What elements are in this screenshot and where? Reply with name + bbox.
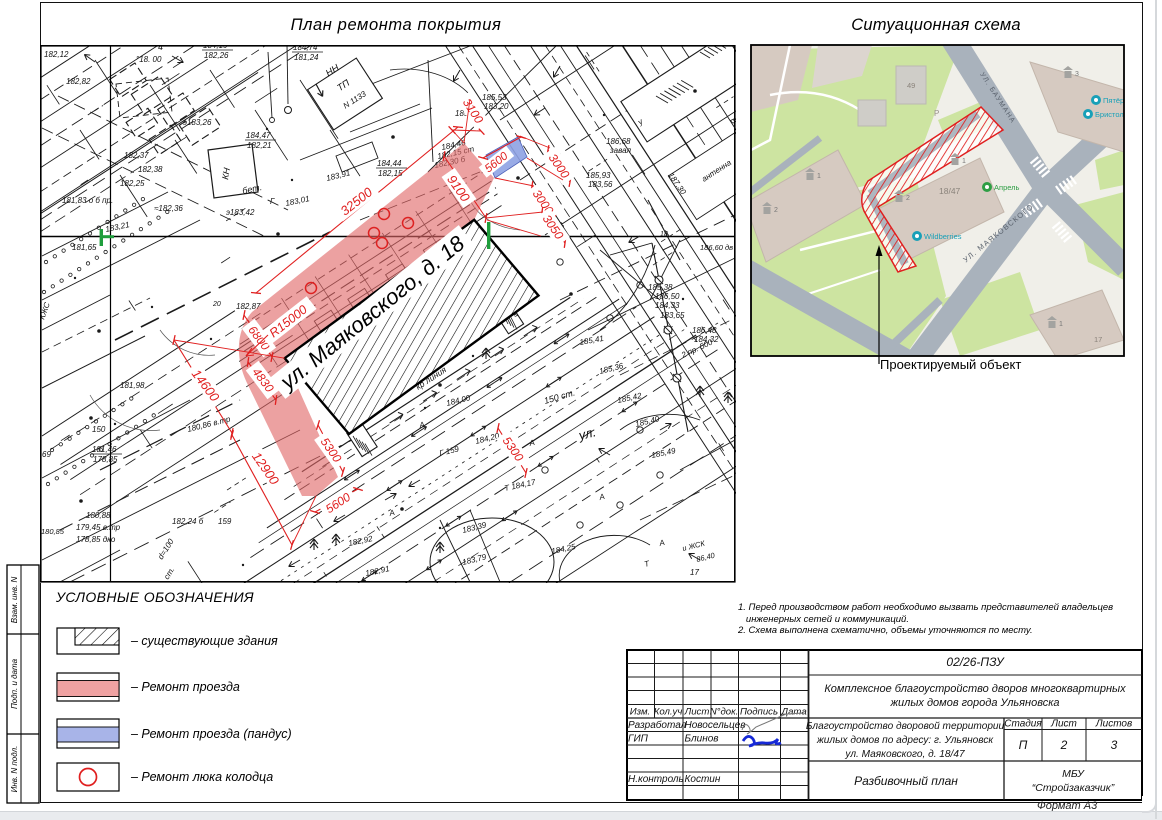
svg-text:179,45 в.тр: 179,45 в.тр xyxy=(76,523,121,532)
svg-text:17: 17 xyxy=(690,568,699,577)
svg-text:°18. 00: °18. 00 xyxy=(136,55,162,64)
svg-text:ул. Маяковского, д. 18/47: ул. Маяковского, д. 18/47 xyxy=(844,749,965,760)
svg-text:МБУ: МБУ xyxy=(1062,768,1085,780)
svg-text:Листов: Листов xyxy=(1095,719,1132,730)
svg-text:Кол.уч: Кол.уч xyxy=(654,707,683,718)
svg-text:Блинов: Блинов xyxy=(685,734,719,745)
svg-text:Н.контроль: Н.контроль xyxy=(628,774,684,785)
svg-text:184,44: 184,44 xyxy=(377,159,402,168)
svg-text:3: 3 xyxy=(1111,738,1118,752)
svg-text:Костин: Костин xyxy=(685,774,721,785)
svg-text:2: 2 xyxy=(906,195,910,202)
svg-text:178,85 дко: 178,85 дко xyxy=(76,535,116,544)
svg-text:Г: Г xyxy=(270,197,275,206)
svg-text:181,98: 181,98 xyxy=(120,381,145,390)
svg-text:1: 1 xyxy=(817,173,821,180)
svg-text:КН: КН xyxy=(220,166,232,180)
svg-text:Комплексное благоустройство дв: Комплексное благоустройство дворов много… xyxy=(824,683,1126,695)
svg-text:183,56: 183,56 xyxy=(588,180,613,189)
svg-text:181,83 о б пр.: 181,83 о б пр. xyxy=(62,196,113,205)
svg-text:э183,26: э183,26 xyxy=(183,118,212,127)
svg-text:Бристоль: Бристоль xyxy=(1095,110,1128,119)
svg-text:Взам. инв. N: Взам. инв. N xyxy=(10,576,19,623)
svg-text:183,65: 183,65 xyxy=(660,311,685,320)
svg-text:181,46: 181,46 xyxy=(92,445,117,454)
svg-text:159: 159 xyxy=(218,517,232,526)
svg-text:49: 49 xyxy=(907,81,915,90)
svg-text:186,68: 186,68 xyxy=(606,137,631,146)
svg-text:17: 17 xyxy=(1094,335,1102,344)
svg-text:3: 3 xyxy=(1075,71,1079,78)
svg-text:жилых домов города Ульяновска: жилых домов города Ульяновска xyxy=(889,697,1059,709)
svg-text:П: П xyxy=(1019,738,1028,752)
svg-text:186,50: 186,50 xyxy=(655,292,680,301)
svg-text:182,37: 182,37 xyxy=(124,151,149,160)
svg-text:182,38: 182,38 xyxy=(138,165,163,174)
svg-text:≈182,36: ≈182,36 xyxy=(154,204,183,213)
svg-text:182,21: 182,21 xyxy=(247,141,271,150)
svg-text:181,24: 181,24 xyxy=(294,53,319,62)
svg-text:20: 20 xyxy=(212,301,221,308)
svg-text:завал: завал xyxy=(609,146,631,155)
svg-text:183,20: 183,20 xyxy=(484,102,509,111)
svg-text:Разработал: Разработал xyxy=(628,719,687,731)
svg-text:1: 1 xyxy=(962,158,966,165)
svg-text:181,65: 181,65 xyxy=(72,243,97,252)
svg-text:Стадия: Стадия xyxy=(1004,719,1042,730)
svg-text:182,15: 182,15 xyxy=(378,169,403,178)
svg-text:02/26-ПЗУ: 02/26-ПЗУ xyxy=(946,655,1005,669)
svg-text:ГИП: ГИП xyxy=(628,734,649,745)
svg-text:Апрель: Апрель xyxy=(994,183,1020,192)
svg-text:69: 69 xyxy=(42,450,51,459)
svg-text:Разбивочный план: Разбивочный план xyxy=(854,774,958,788)
svg-text:178,85: 178,85 xyxy=(93,455,118,464)
svg-text:185,93: 185,93 xyxy=(586,171,611,180)
svg-text:180,85: 180,85 xyxy=(41,527,65,536)
svg-text:150: 150 xyxy=(92,425,106,434)
svg-text:184,33: 184,33 xyxy=(655,301,680,310)
svg-text:Благоустройство дворовой терри: Благоустройство дворовой территории xyxy=(806,721,1005,732)
svg-text:“Стройзаказчик”: “Стройзаказчик” xyxy=(1032,782,1115,794)
svg-text:Дата: Дата xyxy=(780,707,806,718)
svg-text:Р: Р xyxy=(934,109,939,118)
svg-text:184,47: 184,47 xyxy=(246,131,271,140)
svg-text:жилых домов по адресу: г. Улья: жилых домов по адресу: г. Ульяновск xyxy=(816,735,995,746)
svg-text:2: 2 xyxy=(774,207,778,214)
svg-text:186,60 дв: 186,60 дв xyxy=(700,243,733,252)
svg-text:Подпись: Подпись xyxy=(740,707,778,718)
svg-text:Подп. и дата: Подп. и дата xyxy=(10,658,19,709)
svg-text:Лист: Лист xyxy=(684,707,710,718)
svg-text:18/47: 18/47 xyxy=(939,186,961,196)
svg-text:182,26: 182,26 xyxy=(204,51,229,60)
svg-text:Изм.: Изм. xyxy=(630,707,650,718)
svg-text:182,24 б: 182,24 б xyxy=(172,517,204,526)
svg-text:1: 1 xyxy=(1059,321,1063,328)
svg-text:Лист: Лист xyxy=(1050,719,1077,730)
svg-text:2: 2 xyxy=(1060,738,1068,752)
svg-text:Проектируемый объект: Проектируемый объект xyxy=(880,357,1021,372)
svg-text:18: 18 xyxy=(660,231,668,238)
svg-text:182,12: 182,12 xyxy=(44,50,69,59)
svg-text:182,25: 182,25 xyxy=(120,179,145,188)
svg-text:Новосельцев: Новосельцев xyxy=(685,720,746,731)
svg-text:Wildberries: Wildberries xyxy=(924,232,962,241)
svg-text:185,53: 185,53 xyxy=(482,93,507,102)
svg-text:э183,42: э183,42 xyxy=(226,208,255,217)
svg-text:Инв. N подл.: Инв. N подл. xyxy=(10,746,19,793)
svg-text:182,82: 182,82 xyxy=(66,77,91,86)
svg-text:180,88: 180,88 xyxy=(86,511,111,520)
svg-text:N°док.: N°док. xyxy=(710,707,739,718)
